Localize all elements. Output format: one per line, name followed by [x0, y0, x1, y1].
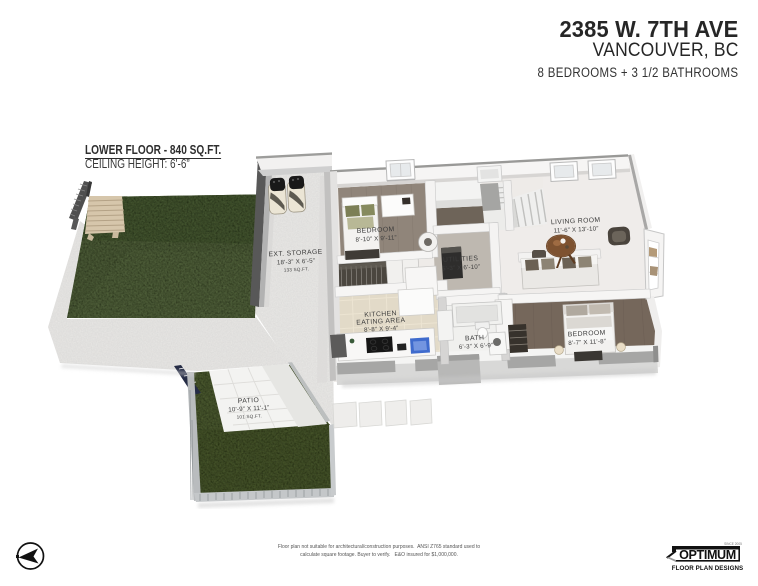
svg-text:SINCE 2005: SINCE 2005	[724, 542, 742, 546]
svg-text:BATH: BATH	[465, 335, 485, 343]
svg-text:PATIO: PATIO	[238, 397, 260, 405]
svg-text:FLOOR PLAN DESIGNS: FLOOR PLAN DESIGNS	[672, 565, 744, 572]
svg-text:OPTIMUM: OPTIMUM	[679, 548, 736, 562]
